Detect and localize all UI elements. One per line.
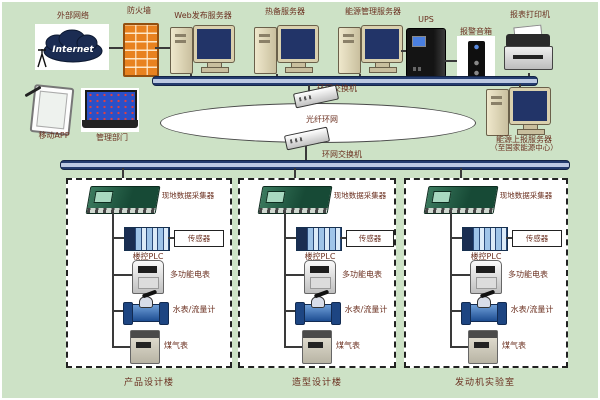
branch-line — [112, 346, 130, 348]
building-1-label: 产品设计楼 — [124, 378, 174, 388]
server-tower — [486, 89, 509, 136]
water-meter-icon — [122, 296, 168, 322]
branch-line — [450, 274, 470, 276]
external-network-label: 外部网络 — [57, 11, 89, 20]
plc-icon — [462, 227, 508, 251]
collector-label: 现地数据采集器 — [162, 192, 215, 201]
gas-meter-icon — [302, 330, 332, 364]
ups-label: UPS — [418, 15, 434, 24]
standby-server-icon — [254, 24, 318, 76]
collector-label: 现地数据采集器 — [500, 192, 553, 201]
mobile-app-tablet-icon — [30, 84, 75, 136]
server-monitor — [194, 26, 234, 62]
gas-meter-icon — [130, 330, 160, 364]
mobile-app-label: 移动APP — [38, 131, 69, 140]
branch-line — [450, 346, 468, 348]
gas-meter-label: 煤气表 — [164, 341, 188, 350]
gas-meter-label: 煤气表 — [502, 341, 526, 350]
report-server-label-line2: （至国家能源中心） — [490, 144, 558, 153]
monitor-base — [285, 67, 313, 73]
collector-label: 现地数据采集器 — [334, 192, 387, 201]
power-meter-label: 多功能电表 — [508, 270, 548, 279]
internet-panel: Internet — [35, 24, 109, 70]
svg-text:Internet: Internet — [52, 45, 94, 55]
monitor-base — [369, 67, 397, 73]
management-label: 管理部门 — [96, 133, 128, 142]
internet-cloud-icon: Internet — [35, 24, 109, 70]
connector-line — [305, 146, 307, 160]
bottom-ring-switch-label: 环网交换机 — [322, 150, 362, 159]
printer-icon — [504, 24, 552, 74]
water-meter-label: 水表/流量计 — [511, 305, 554, 314]
gas-meter-icon — [468, 330, 498, 364]
laptop-base-icon — [82, 120, 138, 128]
water-meter-icon — [294, 296, 340, 322]
water-meter-label: 水表/流量计 — [173, 305, 216, 314]
server-tower — [338, 27, 361, 74]
connector-line — [155, 47, 170, 49]
data-collector-icon — [86, 186, 161, 214]
printer-body — [504, 46, 553, 70]
power-meter-icon — [132, 260, 164, 294]
building-2-label: 造型设计楼 — [292, 378, 342, 388]
building-section-2: 现地数据采集器 传感器 楼控PLC 多功能电表 水表/流量计 煤气表 — [238, 178, 404, 368]
printer-label: 报表打印机 — [510, 10, 550, 19]
branch-line — [284, 274, 304, 276]
building-section-1: 现地数据采集器 传感器 楼控PLC 多功能电表 水表/流量计 煤气表 — [66, 178, 232, 368]
server-monitor — [510, 88, 550, 124]
web-server-icon — [170, 24, 234, 76]
plc-icon — [124, 227, 170, 251]
water-meter-dial — [477, 296, 491, 308]
building-section-3: 现地数据采集器 传感器 楼控PLC 多功能电表 水表/流量计 煤气表 — [404, 178, 570, 368]
alarm-speaker-label: 报警音箱 — [460, 27, 492, 36]
network-topology-diagram: 外部网络 防火墙 Web发布服务器 热备服务器 能源管理服务器 UPS 报警音箱… — [0, 0, 600, 400]
server-monitor — [278, 26, 318, 62]
data-collector-icon — [258, 186, 333, 214]
bottom-network-bus — [60, 160, 570, 170]
branch-line — [284, 237, 296, 239]
data-collector-icon — [424, 186, 499, 214]
trunk-line — [284, 212, 286, 348]
branch-line — [450, 237, 462, 239]
water-meter-icon — [460, 296, 506, 322]
report-server-icon — [486, 86, 550, 138]
water-meter-dial — [311, 296, 325, 308]
branch-line — [112, 274, 132, 276]
server-tower — [254, 27, 277, 74]
power-meter-label: 多功能电表 — [170, 270, 210, 279]
building-3-label: 发动机实验室 — [455, 378, 515, 388]
plc-icon — [296, 227, 342, 251]
gas-meter-label: 煤气表 — [336, 341, 360, 350]
sensor-box: 传感器 — [174, 230, 224, 247]
water-meter-label: 水表/流量计 — [345, 305, 388, 314]
alarm-speaker-icon — [468, 41, 485, 81]
sensor-box: 传感器 — [346, 230, 394, 247]
firewall-label: 防火墙 — [127, 6, 151, 15]
power-meter-label: 多功能电表 — [342, 270, 382, 279]
energy-server-icon — [338, 24, 402, 76]
trunk-line — [450, 212, 452, 348]
branch-line — [284, 346, 302, 348]
branch-line — [112, 237, 124, 239]
monitor-base — [201, 67, 229, 73]
sensor-box: 传感器 — [512, 230, 562, 247]
water-meter-dial — [139, 296, 153, 308]
management-panel — [81, 88, 139, 132]
power-meter-icon — [470, 260, 502, 294]
server-tower — [170, 27, 193, 74]
trunk-line — [112, 212, 114, 348]
energy-server-label: 能源管理服务器 — [345, 7, 401, 16]
server-monitor — [362, 26, 402, 62]
laptop-screen-icon — [85, 90, 137, 122]
power-meter-icon — [304, 260, 336, 294]
firewall-icon — [123, 23, 159, 77]
standby-server-label: 热备服务器 — [265, 7, 305, 16]
web-server-label: Web发布服务器 — [174, 11, 231, 20]
fiber-ring-label: 光纤环网 — [306, 115, 338, 124]
connector-line — [109, 47, 123, 49]
ups-icon — [406, 28, 446, 78]
